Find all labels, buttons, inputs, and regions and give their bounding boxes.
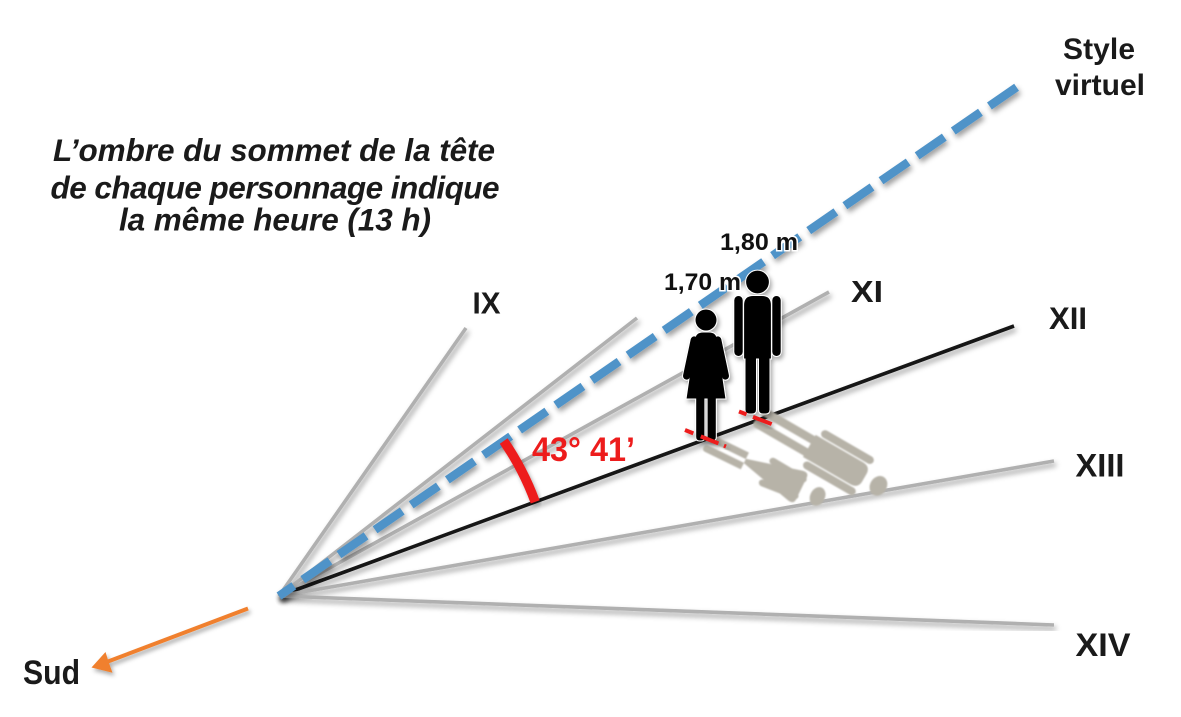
- svg-text:Style: Style: [1063, 33, 1135, 66]
- svg-text:43° 41’: 43° 41’: [532, 431, 635, 469]
- svg-text:L’ombre du sommet de la tête: L’ombre du sommet de la tête: [53, 132, 495, 168]
- svg-text:XII: XII: [1049, 300, 1087, 336]
- svg-text:1,80 m: 1,80 m: [720, 229, 798, 256]
- svg-text:la même heure (13 h): la même heure (13 h): [119, 202, 431, 238]
- svg-text:XIV: XIV: [1076, 627, 1132, 663]
- svg-text:virtuel: virtuel: [1055, 69, 1145, 102]
- svg-text:XI: XI: [851, 274, 883, 309]
- svg-text:IX: IX: [473, 286, 501, 321]
- svg-text:Sud: Sud: [23, 654, 80, 692]
- svg-text:de chaque personnage indique: de chaque personnage indique: [51, 170, 500, 206]
- svg-text:1,70 m: 1,70 m: [664, 269, 741, 296]
- svg-text:XIII: XIII: [1076, 448, 1125, 484]
